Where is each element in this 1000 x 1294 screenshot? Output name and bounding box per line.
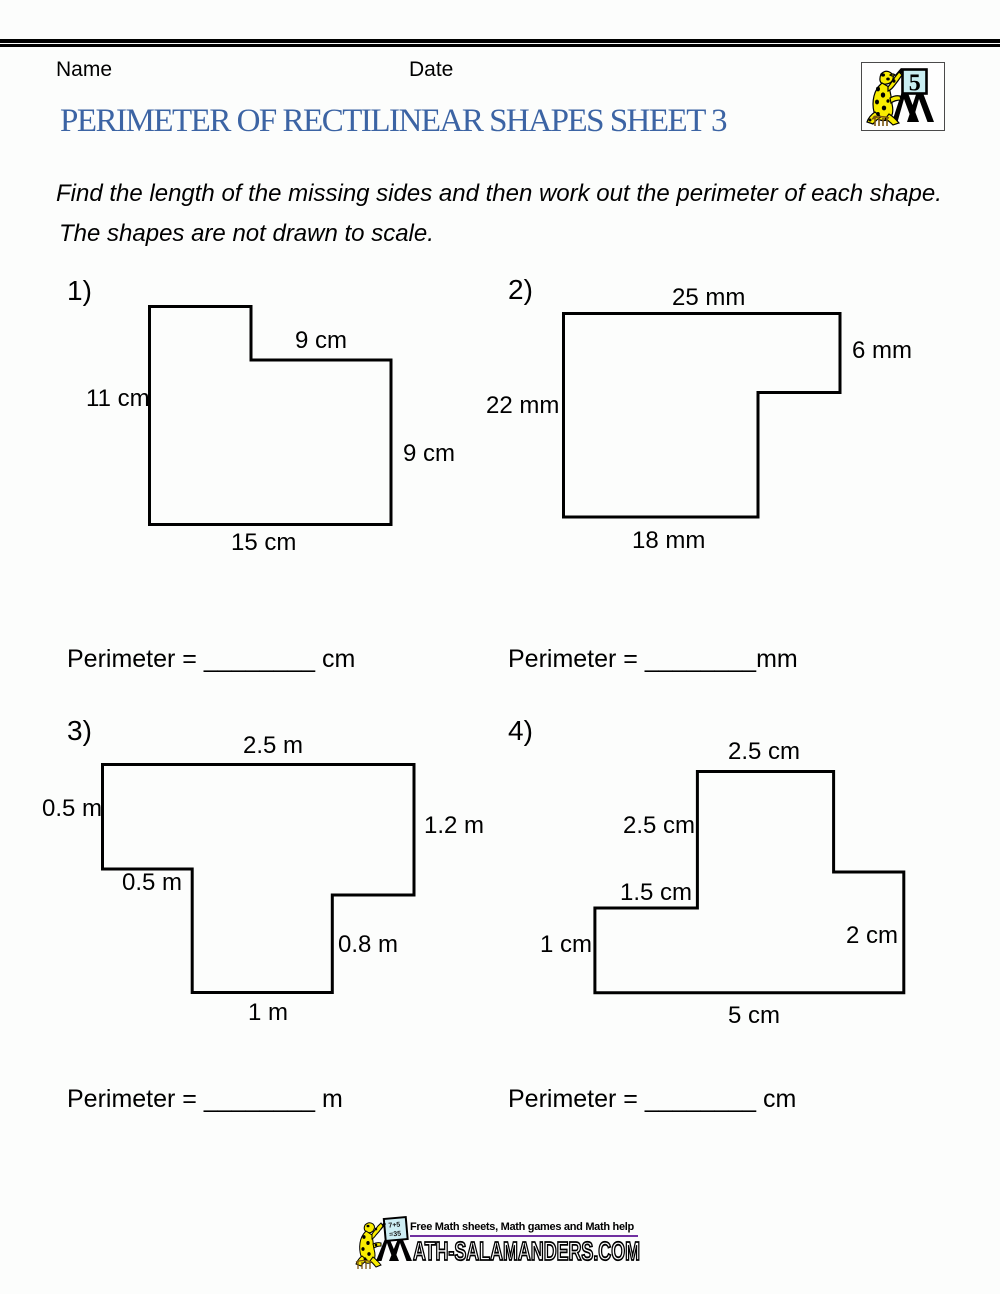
svg-text:ATH-SALAMANDERS.COM: ATH-SALAMANDERS.COM <box>413 1236 640 1266</box>
svg-text:=35: =35 <box>389 1231 402 1239</box>
svg-text:7+5: 7+5 <box>388 1222 401 1230</box>
svg-text:5: 5 <box>909 71 921 97</box>
